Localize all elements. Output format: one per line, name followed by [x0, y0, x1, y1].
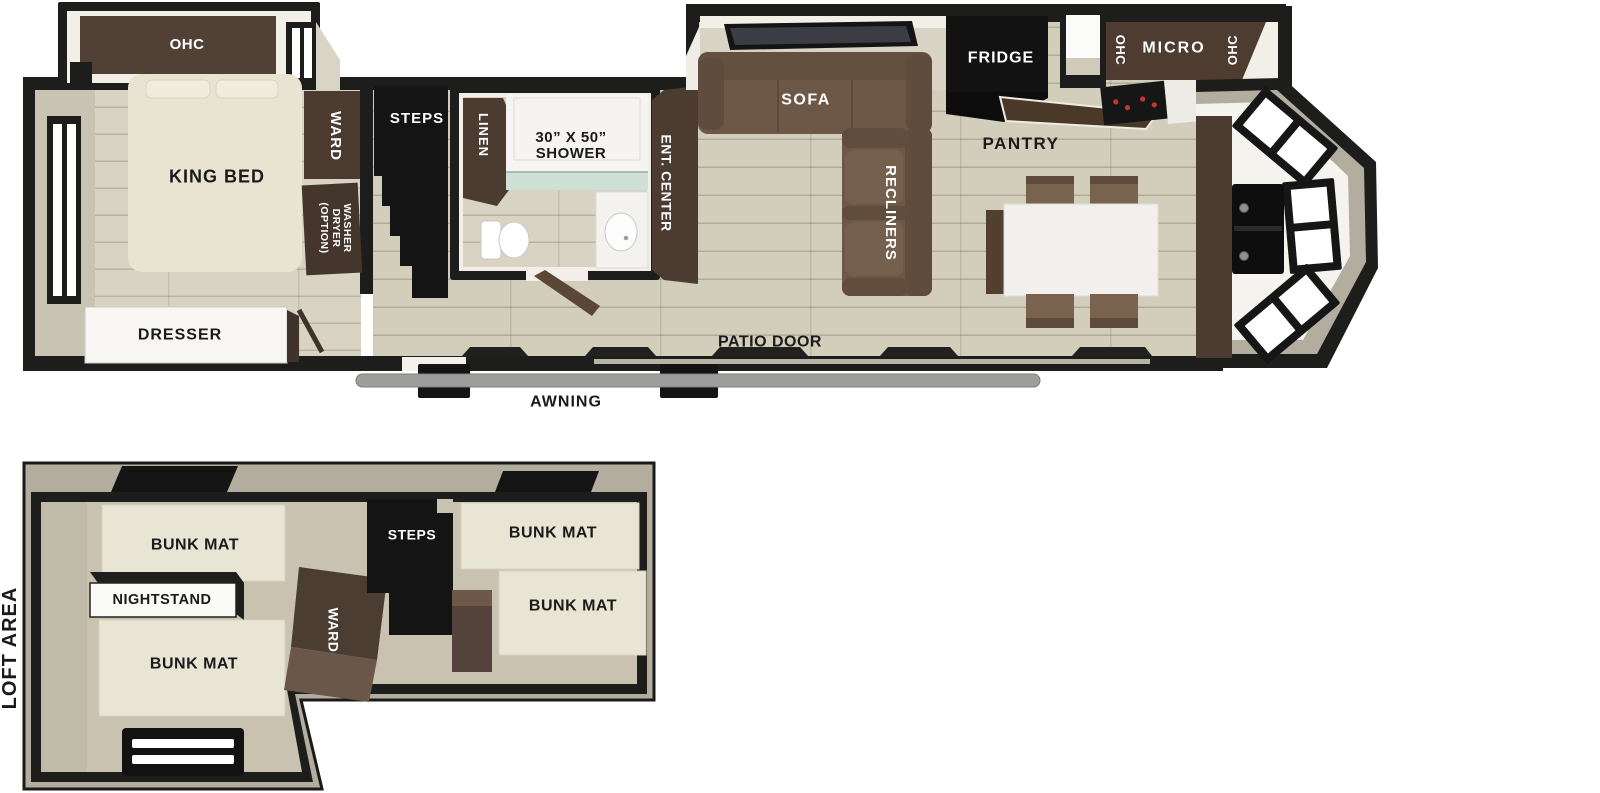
floorplan-drawing — [0, 0, 1600, 793]
loft-ward-label: WARD — [325, 608, 340, 653]
cap-window-right — [1282, 178, 1342, 274]
kitchen-window — [1060, 8, 1106, 88]
stove — [1100, 81, 1168, 125]
bunk-top-left-label: BUNK MAT — [151, 536, 239, 553]
dining-chair — [1026, 294, 1074, 328]
dryer-line: DRYER — [329, 202, 340, 253]
loft-area-label: LOFT AREA — [0, 587, 22, 710]
shower-size-line: 30” X 50” — [535, 130, 606, 146]
bunk-bottom-right-label: BUNK MAT — [529, 597, 617, 614]
kitchen-sink — [1232, 184, 1284, 274]
ohc-right-label: OHC — [1226, 35, 1240, 65]
linen-label: LINEN — [476, 113, 490, 157]
ent-center-label: ENT. CENTER — [658, 134, 673, 231]
dresser-label: DRESSER — [138, 326, 222, 343]
king-bed-label: KING BED — [169, 167, 265, 186]
toilet — [481, 221, 529, 259]
loft-skylight — [111, 466, 238, 492]
loft-skylight — [495, 471, 599, 492]
pantry-label: PANTRY — [983, 135, 1060, 153]
sofa-label: SOFA — [781, 91, 831, 108]
option-line: (OPTION) — [318, 202, 329, 253]
loft-small-cabinet — [452, 590, 492, 672]
awning-label: AWNING — [530, 393, 602, 410]
bathroom-sink — [596, 192, 648, 268]
kitchen-counter — [1196, 116, 1232, 358]
nightstand-label: NIGHTSTAND — [113, 593, 212, 609]
dining-bench — [986, 210, 1006, 294]
bunk-bottom-left-label: BUNK MAT — [150, 655, 238, 672]
fridge-label: FRIDGE — [968, 49, 1034, 66]
dining-table — [1004, 204, 1158, 296]
bunk-top-right-label: BUNK MAT — [509, 524, 597, 541]
loft-ladder-vent — [122, 728, 244, 776]
shower-label: 30” X 50” SHOWER — [535, 130, 606, 162]
awning-bar — [356, 374, 1040, 387]
main-floorplan — [23, 2, 1378, 398]
shower-line: SHOWER — [535, 146, 606, 162]
rv-floorplan-diagram: OHC KING BED WARD WASHER DRYER (OPTION) … — [0, 0, 1600, 793]
loft-steps-label: STEPS — [388, 527, 436, 542]
ward-label: WARD — [327, 111, 343, 161]
bedroom-window — [47, 116, 81, 304]
micro-label: MICRO — [1142, 39, 1205, 56]
washer-line: WASHER — [341, 202, 352, 253]
patio-door-label: PATIO DOOR — [718, 333, 822, 350]
recliners-label: RECLINERS — [882, 165, 898, 261]
main-steps-label: STEPS — [390, 111, 444, 127]
patio-door-glass — [594, 359, 1150, 364]
washer-dryer-label: WASHER DRYER (OPTION) — [318, 202, 352, 253]
ohc-bed-label: OHC — [170, 37, 205, 53]
dining-chair — [1090, 294, 1138, 328]
ohc-left-label: OHC — [1113, 35, 1127, 65]
